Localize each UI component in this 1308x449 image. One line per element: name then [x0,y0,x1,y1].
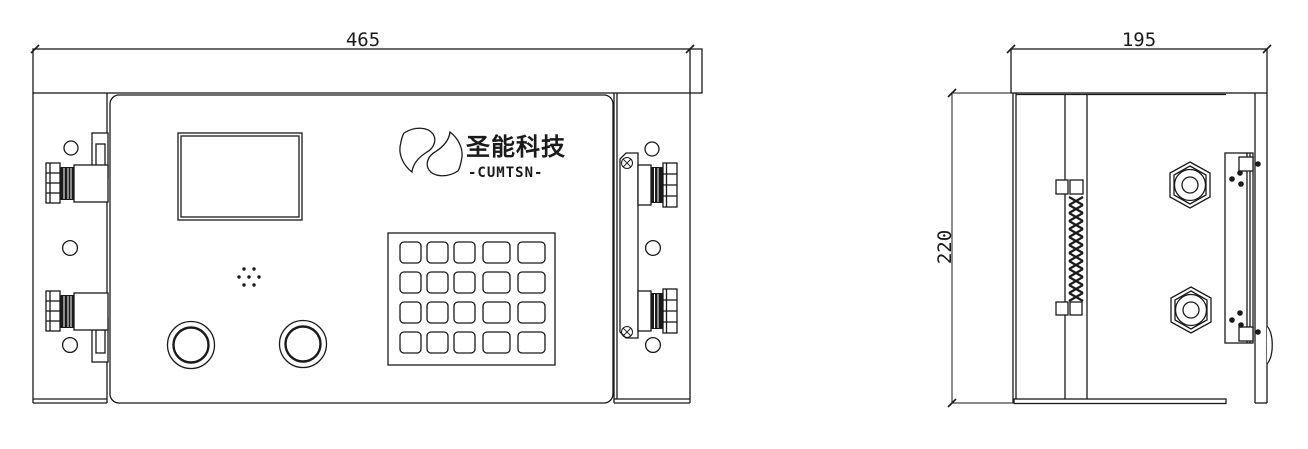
bolt-dot [1229,317,1235,323]
cable-gland-left-top [46,163,108,203]
side-height-label: 220 [934,230,956,264]
brand-tagline: -CUMTSN- [468,165,543,181]
drawing-canvas: 465 [0,0,1308,449]
flange-hole [646,241,661,256]
hex-gland-top [1170,162,1210,208]
top-flange [33,49,702,93]
cable-gland-left-bottom [46,291,108,331]
bolt-dot [1255,161,1261,167]
bolt-dot [1237,170,1243,176]
bracket-plate [620,153,638,338]
brand-name: 圣能科技 [466,133,566,161]
side-height-dimension: 220 [934,89,1013,407]
bolt-dot [1238,181,1244,187]
display-screen [178,133,302,220]
gasket-braid [1069,197,1083,301]
side-bracket-plate [1225,153,1272,364]
bottom-flange-edge [1014,399,1226,404]
bolt-dot [1255,329,1261,335]
flange-hole [63,241,78,256]
flange-hole [645,142,659,156]
hinge-channel [1056,95,1087,400]
flange-hole [646,338,661,353]
side-view: 195 [934,29,1272,407]
cad-drawing: 465 [0,0,1308,449]
top-flange-side [1011,49,1267,93]
latch-bump [1267,326,1272,364]
hex-gland-bottom [1171,287,1211,333]
cable-gland-right-bottom [638,289,677,333]
flange-hole [63,338,78,353]
flange-hole [64,141,78,155]
bolt-dot [1237,310,1243,316]
front-view: 465 [31,29,702,403]
cable-gland-right-top [638,163,677,207]
side-width-label: 195 [1122,29,1156,51]
front-width-label: 465 [346,29,380,51]
bolt-dot [1229,176,1235,182]
bolt-dot [1238,322,1244,328]
